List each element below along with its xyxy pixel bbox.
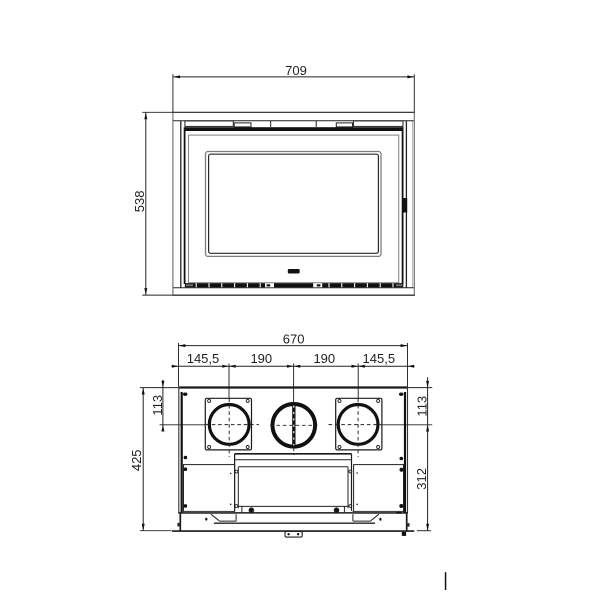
svg-text:113: 113 [150, 395, 165, 416]
svg-text:538: 538 [132, 191, 147, 213]
svg-text:190: 190 [250, 351, 272, 366]
svg-text:670: 670 [283, 332, 305, 347]
svg-text:145,5: 145,5 [187, 351, 220, 366]
svg-text:312: 312 [414, 468, 429, 490]
svg-text:425: 425 [129, 449, 144, 471]
svg-text:190: 190 [313, 351, 335, 366]
svg-text:145,5: 145,5 [363, 351, 396, 366]
svg-text:113: 113 [414, 396, 429, 417]
svg-text:709: 709 [285, 63, 307, 78]
